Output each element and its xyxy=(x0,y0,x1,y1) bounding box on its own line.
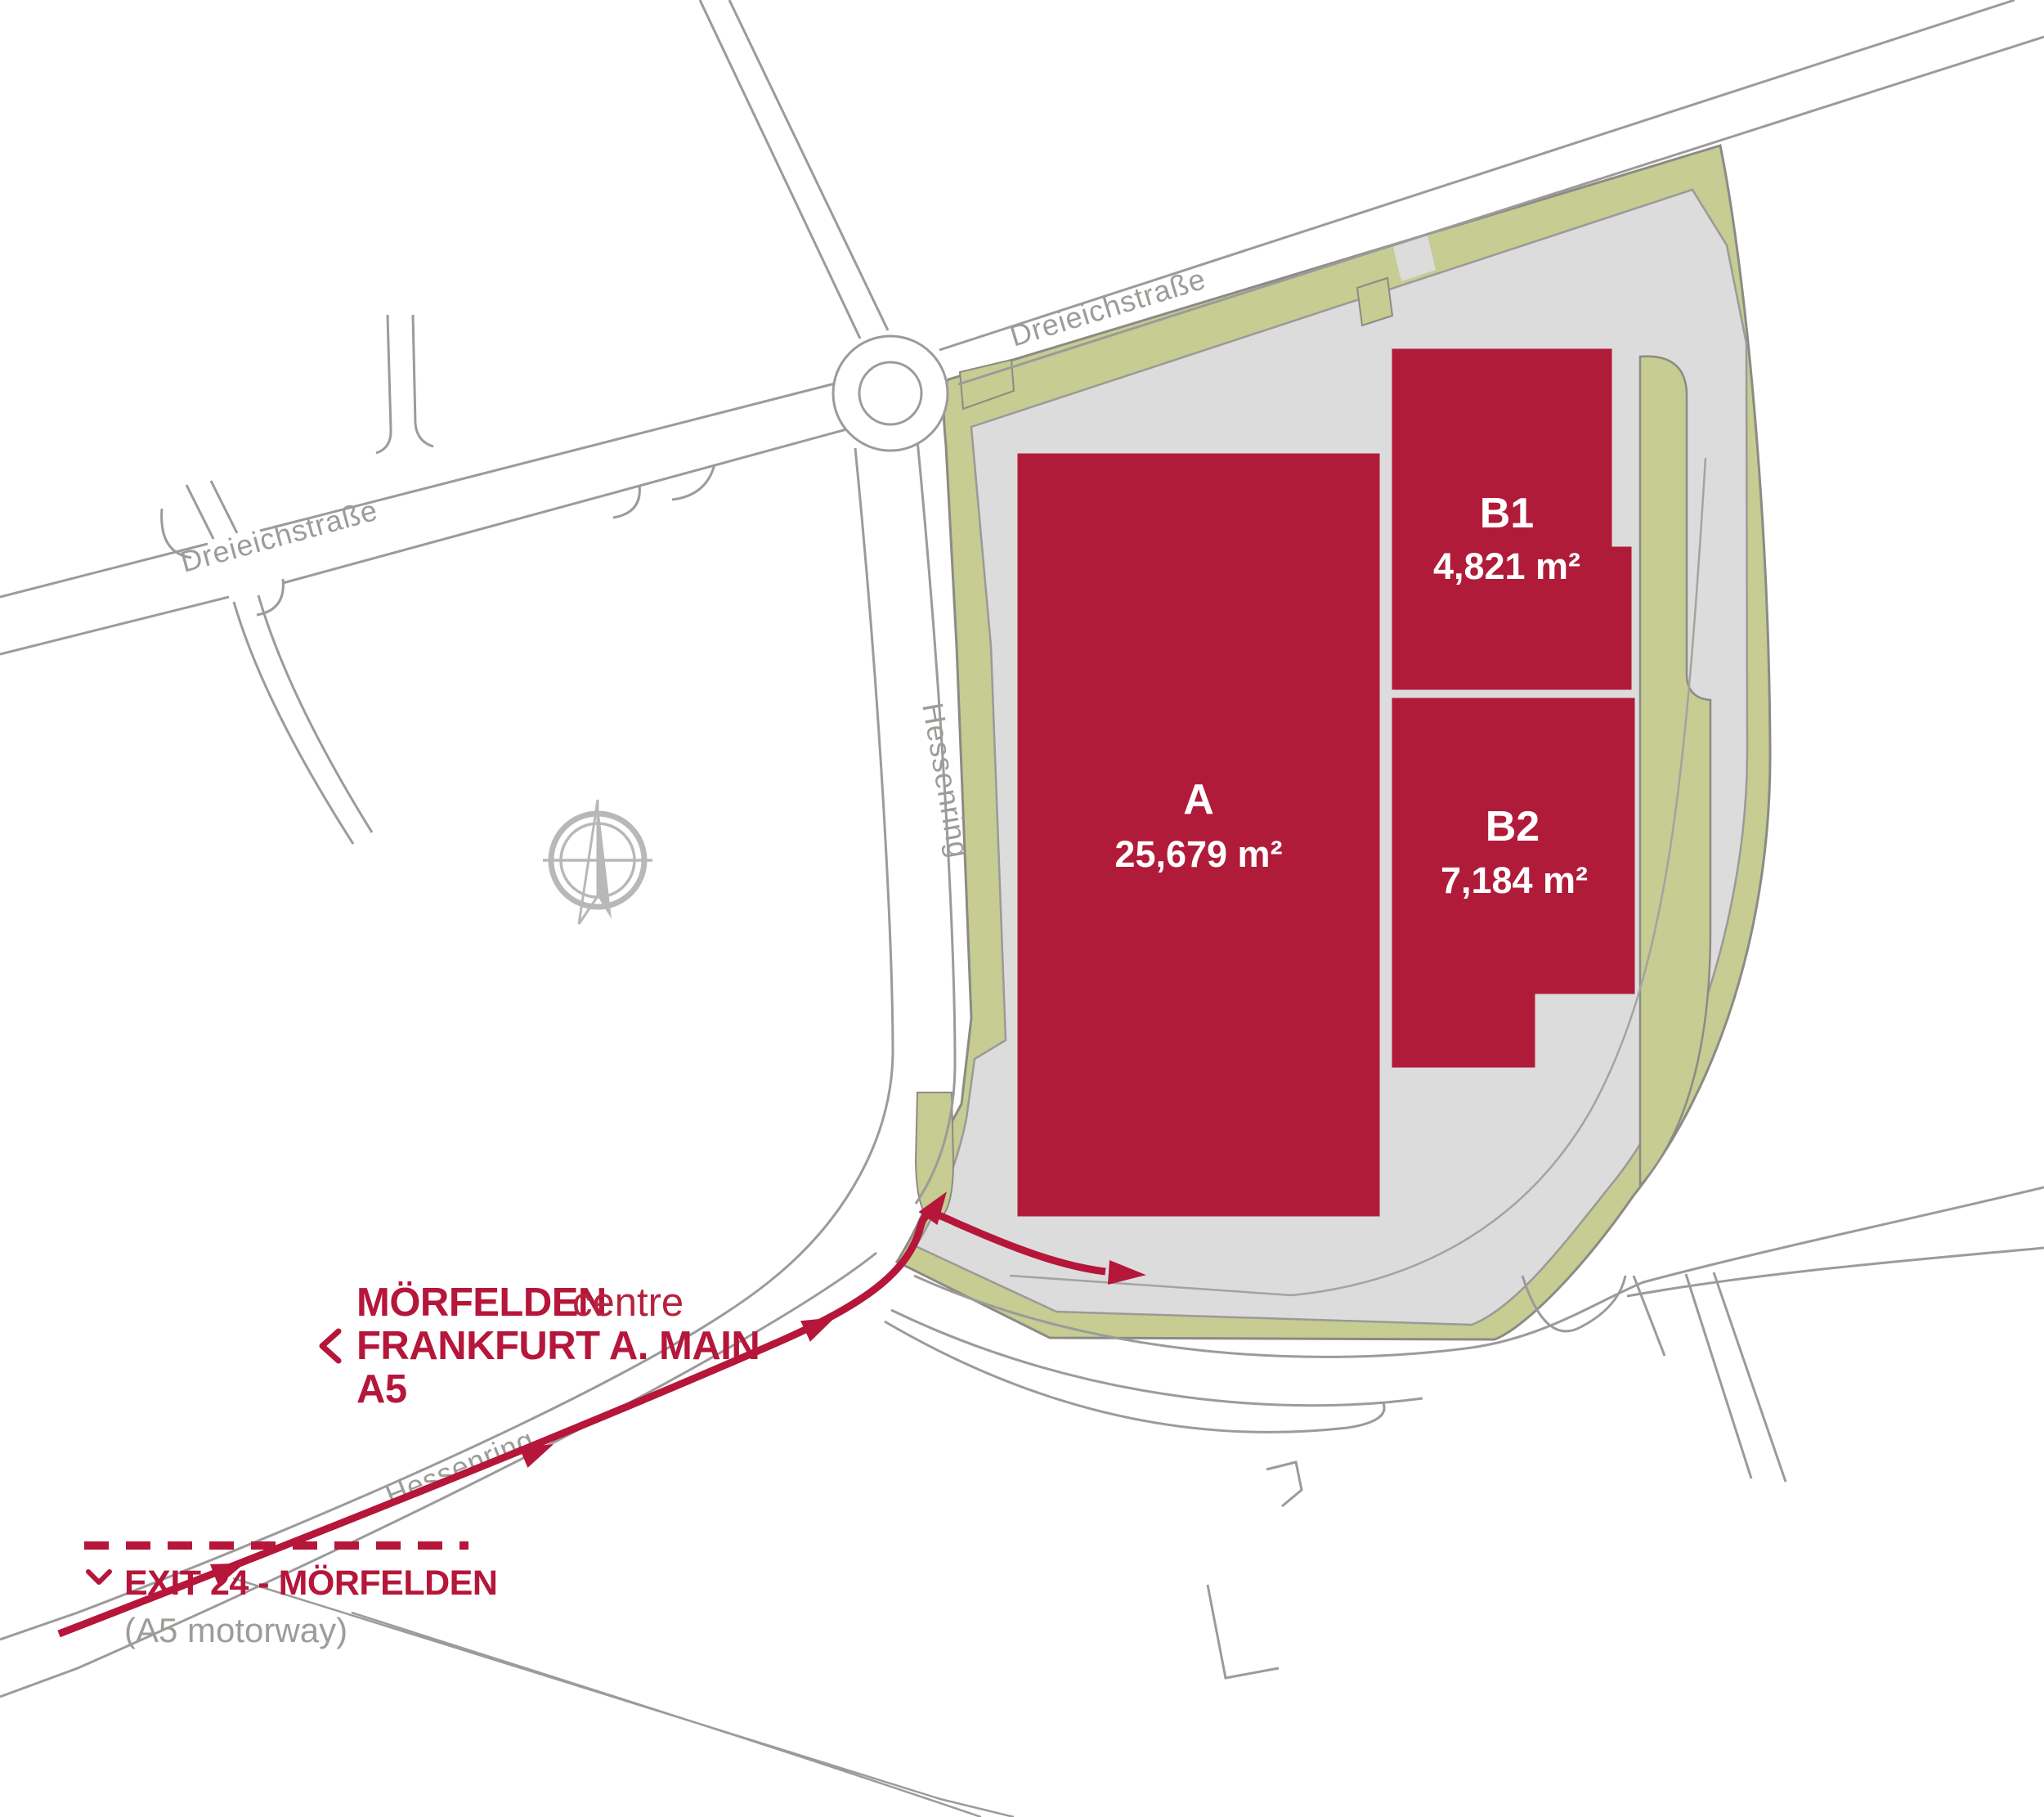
roundabout xyxy=(833,336,948,451)
destination-primary-suffix: centre xyxy=(572,1281,684,1325)
map-canvas: A 25,679 m² B1 4,821 m² B2 7,184 m² xyxy=(0,0,2044,1817)
building-b2-label: B2 xyxy=(1486,803,1540,850)
roundabout-island xyxy=(859,362,921,424)
destination-motorway: A5 xyxy=(356,1367,407,1411)
chevron-left-icon xyxy=(322,1331,338,1361)
parcel-zigzag xyxy=(1266,1462,1302,1506)
site-plan-map: A 25,679 m² B1 4,821 m² B2 7,184 m² xyxy=(0,0,2044,1817)
parcel-l-bracket xyxy=(1208,1585,1279,1678)
road-north-edges xyxy=(700,0,888,339)
exit-label: EXIT 24 - MÖRFELDEN xyxy=(124,1564,497,1603)
road-south-branch xyxy=(1634,1272,1786,1482)
building-b1-area: 4,821 m² xyxy=(1433,545,1580,587)
destination-primary: MÖRFELDEN xyxy=(356,1281,607,1325)
road-ramp xyxy=(233,1578,1014,1817)
exit-note: (A5 motorway) xyxy=(124,1611,347,1649)
compass xyxy=(543,800,652,924)
building-a-area: 25,679 m² xyxy=(1114,833,1282,875)
street-label-dreieichstrasse-left: Dreieichstraße xyxy=(177,493,381,579)
destination-secondary: FRANKFURT A. MAIN xyxy=(356,1324,760,1368)
road-dreieichstrasse-w xyxy=(0,383,876,654)
building-b2-area: 7,184 m² xyxy=(1441,859,1588,901)
road-north-stub xyxy=(376,315,433,453)
building-b1-label: B1 xyxy=(1480,490,1534,537)
chevron-down-icon xyxy=(88,1572,110,1582)
building-a-label: A xyxy=(1183,776,1214,823)
